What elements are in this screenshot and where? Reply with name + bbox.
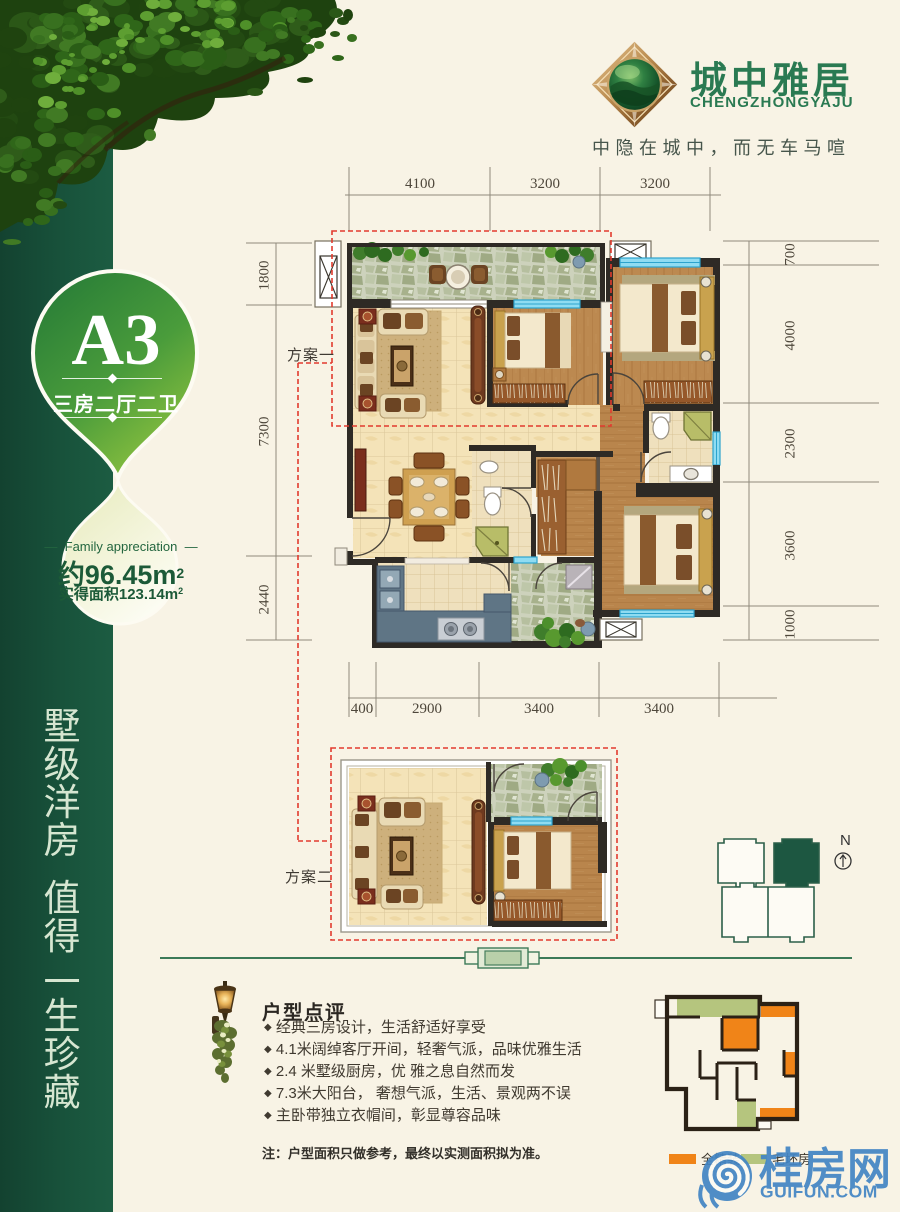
- svg-text:N: N: [840, 832, 851, 849]
- svg-text:GUIFUN.COM: GUIFUN.COM: [760, 1182, 878, 1202]
